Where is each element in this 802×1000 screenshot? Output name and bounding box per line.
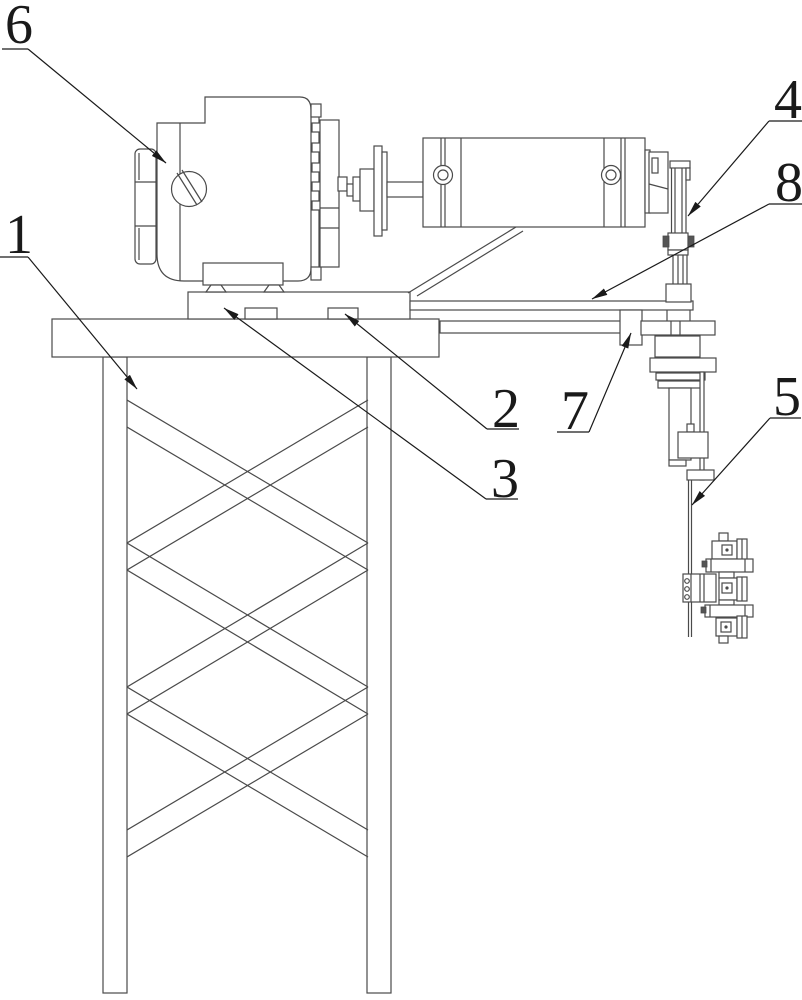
frame-cross-braces	[127, 400, 368, 857]
callout-label-8: 8	[775, 152, 802, 214]
support-strut	[408, 227, 523, 296]
callout-label-4: 4	[774, 69, 802, 131]
support-frame	[52, 319, 439, 993]
spindle-clamp-block	[678, 432, 708, 458]
spindle-flange	[650, 358, 716, 372]
motor-foot-pad-right	[264, 285, 284, 292]
motor-front-flange	[135, 149, 156, 264]
patent-figure: 6 1 4 8 2 3 7 5	[0, 0, 802, 1000]
frame-right-leg	[367, 357, 391, 993]
bracket-base	[666, 284, 691, 302]
callout-6: 6	[2, 0, 166, 163]
roller-bar-bottom	[705, 605, 753, 617]
table-top	[52, 319, 439, 357]
callout-label-5: 5	[773, 366, 801, 428]
spindle-bottom-cap	[687, 470, 714, 480]
callout-label-6: 6	[5, 0, 33, 56]
slot-key-right	[328, 308, 358, 319]
rod-end-clevis	[645, 150, 668, 213]
bracket-clamp	[668, 233, 688, 250]
motor	[135, 97, 347, 292]
shaft-coupling	[347, 146, 423, 236]
roller-head-assembly	[683, 533, 753, 643]
clamp-nut-left	[663, 236, 669, 247]
motor-foot	[203, 263, 283, 285]
motor-foot-pad-left	[206, 285, 226, 292]
callout-label-7: 7	[561, 380, 589, 442]
coupling-disc-rear	[382, 152, 387, 230]
bracket-top-cap	[670, 161, 690, 168]
spindle-block	[655, 336, 700, 357]
spindle-top-bar	[641, 321, 715, 335]
spindle-guide-rod	[700, 372, 704, 480]
coupling-hub-large	[360, 169, 374, 211]
motor-rear-cap-bottom	[311, 267, 321, 280]
motor-rear-housing	[320, 120, 339, 267]
roller-bar-top	[706, 559, 753, 572]
callout-label-3: 3	[491, 448, 519, 510]
motor-shaft-boss	[338, 177, 347, 191]
suspension-wire	[689, 480, 692, 637]
slot-key-left	[245, 308, 277, 319]
technical-drawing: 6 1 4 8 2 3 7 5	[0, 0, 802, 1000]
coupling-disc	[374, 146, 382, 236]
drive-shaft	[387, 182, 423, 197]
cylinder	[423, 138, 645, 227]
slide-block	[620, 310, 642, 345]
mounting-plate	[188, 292, 410, 319]
callout-7: 7	[557, 333, 631, 442]
frame-left-leg	[103, 357, 127, 993]
callout-label-2: 2	[492, 378, 520, 440]
spindle-assembly	[641, 310, 716, 480]
mounting-plate-body	[188, 292, 410, 319]
horizontal-arm	[410, 301, 693, 310]
motor-rear-cap-top	[311, 104, 321, 117]
coupling-hub-small	[353, 177, 360, 201]
guide-rail	[440, 321, 622, 333]
